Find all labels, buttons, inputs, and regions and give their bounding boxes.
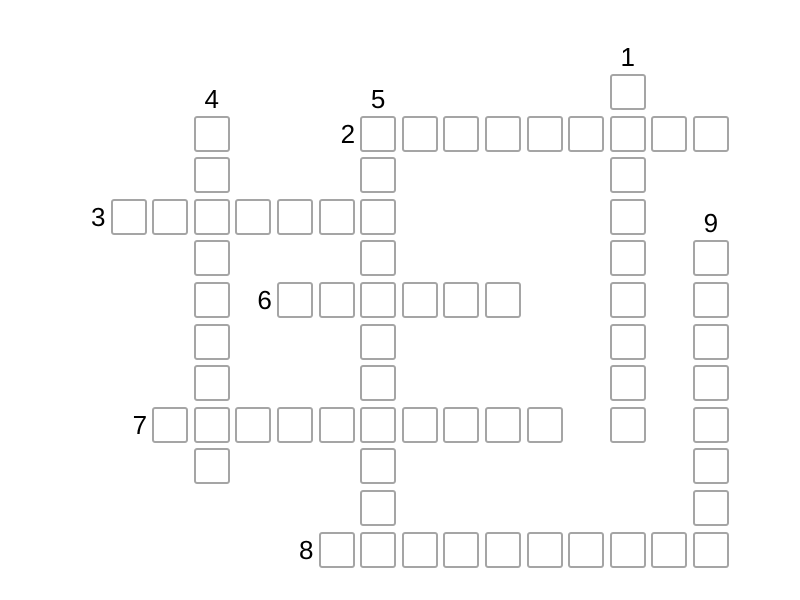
crossword-cell-r3-c1[interactable] xyxy=(152,199,188,235)
crossword-cell-r5-c9[interactable] xyxy=(485,282,521,318)
crossword-cell-r5-c2[interactable] xyxy=(194,282,230,318)
crossword-cell-r2-c6[interactable] xyxy=(360,157,396,193)
clue-number-9: 9 xyxy=(693,209,729,237)
crossword-cell-r11-c7[interactable] xyxy=(402,532,438,568)
crossword-cell-r10-c14[interactable] xyxy=(693,490,729,526)
crossword-cell-r5-c6[interactable] xyxy=(360,282,396,318)
crossword-cell-r0-c12[interactable] xyxy=(610,74,646,110)
clue-number-5: 5 xyxy=(360,85,396,113)
crossword-cell-r8-c1[interactable] xyxy=(152,407,188,443)
crossword-cell-r8-c6[interactable] xyxy=(360,407,396,443)
crossword-cell-r1-c8[interactable] xyxy=(443,116,479,152)
crossword-cell-r9-c6[interactable] xyxy=(360,448,396,484)
crossword-cell-r2-c12[interactable] xyxy=(610,157,646,193)
crossword-cell-r11-c12[interactable] xyxy=(610,532,646,568)
crossword-cell-r6-c6[interactable] xyxy=(360,324,396,360)
crossword-cell-r4-c6[interactable] xyxy=(360,240,396,276)
crossword-cell-r11-c8[interactable] xyxy=(443,532,479,568)
crossword-cell-r5-c4[interactable] xyxy=(277,282,313,318)
crossword-cell-r6-c12[interactable] xyxy=(610,324,646,360)
crossword-cell-r8-c3[interactable] xyxy=(235,407,271,443)
crossword-cell-r11-c5[interactable] xyxy=(319,532,355,568)
crossword-cell-r9-c14[interactable] xyxy=(693,448,729,484)
crossword-cell-r3-c4[interactable] xyxy=(277,199,313,235)
crossword-cell-r11-c10[interactable] xyxy=(527,532,563,568)
clue-number-4: 4 xyxy=(194,85,230,113)
crossword-cell-r8-c10[interactable] xyxy=(527,407,563,443)
crossword-cell-r8-c4[interactable] xyxy=(277,407,313,443)
crossword-cell-r1-c2[interactable] xyxy=(194,116,230,152)
crossword-cell-r5-c12[interactable] xyxy=(610,282,646,318)
crossword-cell-r2-c2[interactable] xyxy=(194,157,230,193)
crossword-cell-r3-c5[interactable] xyxy=(319,199,355,235)
crossword-cell-r8-c9[interactable] xyxy=(485,407,521,443)
crossword-cell-r11-c13[interactable] xyxy=(651,532,687,568)
crossword-cell-r11-c14[interactable] xyxy=(693,532,729,568)
crossword-cell-r3-c12[interactable] xyxy=(610,199,646,235)
crossword-cell-r4-c2[interactable] xyxy=(194,240,230,276)
crossword-cell-r3-c0[interactable] xyxy=(111,199,147,235)
crossword-cell-r8-c8[interactable] xyxy=(443,407,479,443)
crossword-cell-r11-c6[interactable] xyxy=(360,532,396,568)
crossword-cell-r8-c7[interactable] xyxy=(402,407,438,443)
crossword-cell-r1-c12[interactable] xyxy=(610,116,646,152)
crossword-cell-r8-c14[interactable] xyxy=(693,407,729,443)
crossword-cell-r5-c14[interactable] xyxy=(693,282,729,318)
clue-number-8: 8 xyxy=(278,532,314,568)
crossword-cell-r3-c2[interactable] xyxy=(194,199,230,235)
crossword-cell-r1-c10[interactable] xyxy=(527,116,563,152)
crossword-cell-r3-c6[interactable] xyxy=(360,199,396,235)
crossword-cell-r7-c6[interactable] xyxy=(360,365,396,401)
crossword-cell-r5-c7[interactable] xyxy=(402,282,438,318)
crossword-cell-r4-c14[interactable] xyxy=(693,240,729,276)
crossword-cell-r8-c5[interactable] xyxy=(319,407,355,443)
crossword-cell-r8-c12[interactable] xyxy=(610,407,646,443)
crossword-cell-r3-c3[interactable] xyxy=(235,199,271,235)
crossword-cell-r5-c8[interactable] xyxy=(443,282,479,318)
crossword-cell-r1-c14[interactable] xyxy=(693,116,729,152)
crossword-cell-r11-c11[interactable] xyxy=(568,532,604,568)
clue-number-6: 6 xyxy=(236,282,272,318)
crossword-cell-r1-c7[interactable] xyxy=(402,116,438,152)
crossword-cell-r7-c12[interactable] xyxy=(610,365,646,401)
crossword-cell-r10-c6[interactable] xyxy=(360,490,396,526)
clue-number-1: 1 xyxy=(610,43,646,71)
crossword-cell-r1-c13[interactable] xyxy=(651,116,687,152)
crossword-cell-r8-c2[interactable] xyxy=(194,407,230,443)
crossword-cell-r1-c6[interactable] xyxy=(360,116,396,152)
crossword-board: 123456789 xyxy=(0,0,800,600)
crossword-cell-r6-c14[interactable] xyxy=(693,324,729,360)
clue-number-3: 3 xyxy=(70,199,106,235)
crossword-cell-r5-c5[interactable] xyxy=(319,282,355,318)
clue-number-2: 2 xyxy=(319,116,355,152)
crossword-cell-r4-c12[interactable] xyxy=(610,240,646,276)
crossword-cell-r7-c14[interactable] xyxy=(693,365,729,401)
clue-number-7: 7 xyxy=(111,407,147,443)
crossword-cell-r6-c2[interactable] xyxy=(194,324,230,360)
crossword-cell-r7-c2[interactable] xyxy=(194,365,230,401)
crossword-cell-r11-c9[interactable] xyxy=(485,532,521,568)
crossword-cell-r1-c9[interactable] xyxy=(485,116,521,152)
crossword-cell-r1-c11[interactable] xyxy=(568,116,604,152)
crossword-cell-r9-c2[interactable] xyxy=(194,448,230,484)
